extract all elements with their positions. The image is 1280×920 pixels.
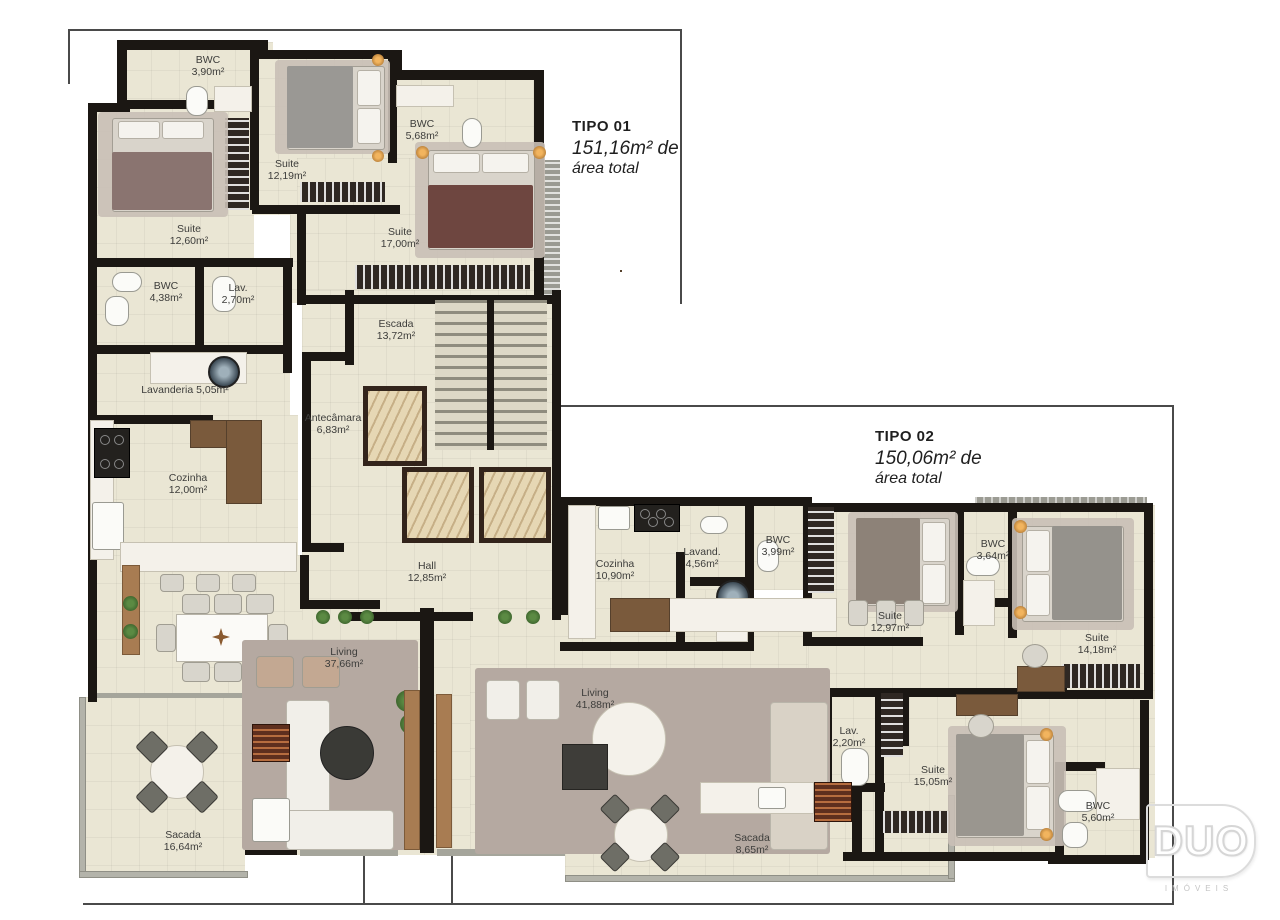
blanket — [856, 518, 920, 604]
hatch-suite17-right — [544, 160, 560, 302]
blanket — [112, 152, 212, 210]
wall — [560, 497, 810, 506]
pillow — [922, 522, 946, 562]
boundary-stub-2 — [451, 856, 453, 905]
wardrobe — [881, 693, 903, 757]
room-label-suite-1297: Suite12,97m² — [871, 610, 910, 634]
boundary-stub-1 — [363, 856, 365, 905]
pillow — [1026, 786, 1050, 830]
tipo02-heading: TIPO 02 150,06m² de área total — [875, 428, 982, 488]
island — [120, 542, 297, 572]
wall — [297, 205, 306, 305]
room-label-suite-1260: Suite12,60m² — [170, 223, 209, 247]
wall — [283, 258, 292, 373]
wall — [250, 50, 259, 210]
room-label-suite-17: Suite17,00m² — [381, 226, 420, 250]
room-label-suite-1505: Suite15,05m² — [914, 764, 953, 788]
toilet — [112, 272, 142, 292]
lamp — [372, 150, 384, 162]
wall — [1048, 855, 1148, 864]
wall — [302, 352, 311, 547]
wardrobe — [355, 265, 530, 289]
stove — [94, 428, 130, 478]
room-label-living-01: Living37,66m² — [325, 646, 364, 670]
lamp — [533, 146, 546, 159]
barbecue-grill — [814, 782, 852, 822]
stair-divider — [487, 300, 494, 450]
sacada865-rail-bottom — [565, 875, 955, 882]
dining-chair — [214, 662, 242, 682]
lamp — [1014, 606, 1027, 619]
dining-chair — [156, 624, 176, 652]
wardrobe — [225, 118, 249, 210]
stool — [848, 600, 868, 626]
sacada-sink — [252, 798, 290, 842]
wall — [302, 543, 344, 552]
sacada-sink — [758, 787, 786, 809]
wardrobe — [883, 811, 950, 833]
room-label-bwc-568: BWC5,68m² — [406, 118, 439, 142]
tipo01-area: 151,16m² de — [572, 138, 679, 160]
room-label-living-02: Living41,88m² — [576, 687, 615, 711]
boundary-line-left-stub — [68, 29, 70, 84]
tipo02-area2: área total — [875, 470, 982, 488]
toilet — [841, 748, 869, 786]
wardrobe — [808, 507, 834, 593]
wall — [88, 258, 293, 267]
pillow — [357, 108, 381, 144]
lamp — [1014, 520, 1027, 533]
pillow — [1026, 574, 1050, 616]
room-label-antecamara: Antecâmara6,83m² — [305, 412, 362, 436]
island-wood — [610, 598, 670, 632]
desk — [956, 694, 1018, 716]
wall — [123, 40, 268, 50]
lamp — [1040, 728, 1053, 741]
lamp — [416, 146, 429, 159]
wall — [302, 352, 352, 361]
sacada-counter — [700, 782, 814, 814]
dining-chair — [214, 594, 242, 614]
dining-chair — [246, 594, 274, 614]
floor-plan: BWC3,90m² Suite12,19m² BWC5,68m² Suite12… — [0, 0, 1280, 920]
wall — [803, 637, 923, 646]
duo-logo-subtext: IMÓVEIS — [1165, 884, 1233, 893]
tipo02-title: TIPO 02 — [875, 428, 982, 445]
kitchen-counter — [568, 505, 596, 639]
coffee-table — [320, 726, 374, 780]
room-label-escada: Escada13,72m² — [377, 318, 416, 342]
dining-chair — [182, 594, 210, 614]
barbecue-grill — [252, 724, 290, 762]
boundary-line-top — [68, 29, 682, 31]
wall — [88, 103, 97, 267]
stool — [160, 574, 184, 592]
wardrobe — [300, 182, 385, 202]
sink — [105, 296, 129, 326]
pillow — [1026, 530, 1050, 572]
sacada1664-rail-left — [79, 697, 86, 877]
tv-panel — [436, 694, 452, 848]
armchair — [526, 680, 560, 720]
sacada1664-window — [90, 693, 245, 698]
sink-counter — [396, 85, 454, 107]
lamp — [372, 54, 384, 66]
lamp — [1040, 828, 1053, 841]
boundary-line-bottom — [83, 903, 1174, 905]
armchair — [256, 656, 294, 688]
wall — [195, 262, 204, 347]
blanket — [1052, 526, 1122, 620]
sofa — [286, 810, 394, 850]
tipo01-heading: TIPO 01 151,16m² de área total — [572, 118, 679, 178]
tipo02-area: 150,06m² de — [875, 448, 982, 470]
room-label-sacada-01: Sacada16,64m² — [164, 829, 203, 853]
room-label-cozinha-02: Cozinha10,90m² — [596, 558, 635, 582]
plant — [360, 610, 374, 624]
stool — [196, 574, 220, 592]
desk — [620, 270, 622, 272]
pillow — [433, 153, 480, 173]
duo-logo: DUO — [1146, 804, 1256, 878]
elevator-shaft-2 — [402, 467, 474, 543]
elevator-shaft-1 — [363, 386, 427, 466]
plant — [498, 610, 512, 624]
wall — [560, 642, 752, 651]
duo-logo-text: DUO — [1153, 817, 1249, 865]
wall — [808, 503, 1153, 512]
wall — [1144, 508, 1153, 698]
room-label-bwc-438: BWC4,38m² — [150, 280, 183, 304]
cabinet — [226, 420, 262, 504]
room-label-lavand: Lavand.4,56m² — [683, 546, 720, 570]
plant — [338, 610, 352, 624]
desk-chair — [968, 714, 994, 738]
plant — [316, 610, 330, 624]
wall — [300, 600, 380, 609]
sacada1664-rail-bottom — [79, 871, 248, 878]
pillow — [1026, 740, 1050, 784]
plant — [123, 596, 138, 611]
stool — [232, 574, 256, 592]
room-label-suite-1418: Suite14,18m² — [1078, 632, 1117, 656]
room-label-lavanderia: Lavanderia 5,05m² — [141, 384, 229, 396]
room-label-lav-270: Lav.2,70m² — [222, 282, 255, 306]
room-label-hall: Hall12,85m² — [408, 560, 447, 584]
plant — [123, 624, 138, 639]
wall — [300, 555, 309, 605]
elevator-shaft-3 — [479, 467, 551, 543]
pillow — [357, 70, 381, 106]
blanket — [287, 66, 353, 148]
room-label-bwc-399: BWC3,99m² — [762, 534, 795, 558]
kitchen-sink — [598, 506, 630, 530]
plant — [526, 610, 540, 624]
sink — [1062, 822, 1088, 848]
tv-panel — [404, 690, 420, 850]
room-label-bwc-390: BWC3,90m² — [192, 54, 225, 78]
sink — [700, 516, 728, 534]
toilet — [186, 86, 208, 116]
sofa — [770, 702, 828, 850]
wall — [843, 852, 1063, 861]
pillow — [482, 153, 529, 173]
sink-counter — [214, 86, 252, 112]
pillow — [118, 121, 160, 139]
room-label-lav-220: Lav.2,20m² — [833, 725, 866, 749]
wall — [420, 608, 434, 853]
tipo01-area2: área total — [572, 160, 679, 178]
stove — [634, 504, 680, 532]
pillow — [162, 121, 204, 139]
room-label-sacada-02: Sacada8,65m² — [734, 832, 770, 856]
room-label-bwc-364: BWC3,64m² — [977, 538, 1010, 562]
living01-door-sill — [300, 849, 398, 856]
blanket — [428, 185, 533, 248]
boundary-line-right-tipo01 — [680, 29, 682, 304]
wall — [252, 205, 400, 214]
pillow — [922, 564, 946, 604]
toilet — [462, 118, 482, 148]
blanket — [956, 734, 1024, 836]
boundary-line-top-tipo02 — [560, 405, 1174, 407]
desk-chair — [1022, 644, 1048, 668]
wall — [393, 70, 543, 80]
room-label-cozinha-01: Cozinha12,00m² — [169, 472, 208, 496]
room-label-suite-1219: Suite12,19m² — [268, 158, 307, 182]
desk — [1017, 666, 1065, 692]
side-table — [562, 744, 608, 790]
tipo01-title: TIPO 01 — [572, 118, 679, 135]
armchair — [486, 680, 520, 720]
wardrobe — [1062, 664, 1140, 688]
dining-chair — [182, 662, 210, 682]
room-label-bwc-560: BWC5,60m² — [1082, 800, 1115, 824]
shower — [963, 580, 995, 626]
